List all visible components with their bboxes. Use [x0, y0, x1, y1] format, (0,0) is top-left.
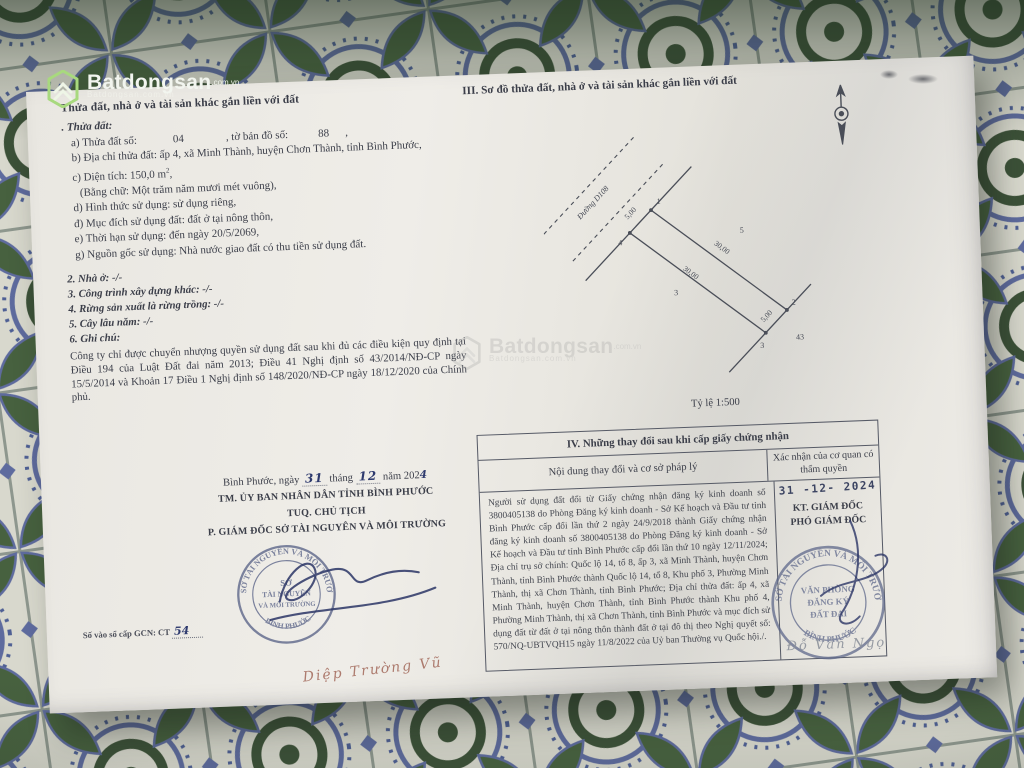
map-sheet-label: , tờ bản đồ số: [226, 129, 289, 143]
watermark-domain: .com.vn [211, 78, 239, 87]
adjacent-parcel-left: 3 [674, 288, 678, 297]
col-header-confirmation: Xác nhận của cơ quan có thẩm quyền [768, 446, 880, 481]
change-content-text: Người sử dụng đất đổi từ Giấy chứng nhận… [480, 482, 781, 671]
corner-4: 4 [618, 238, 622, 247]
director-signature-ink [255, 529, 449, 646]
asset-items: 2. Nhà ở: -/- 3. Công trình xây dựng khá… [67, 257, 472, 347]
adjacent-parcel-right: 5 [740, 226, 744, 235]
watermark-domain: .com.vn [613, 342, 641, 351]
stamp-and-signature-area: SỞ TÀI NGUYÊN VÀ MÔI TRƯỜNG BÌNH PHƯỚC S… [169, 531, 491, 693]
notes-paragraph: Công ty chỉ được chuyển nhượng quyền sử … [70, 335, 468, 405]
smudge-mark [908, 74, 938, 84]
dim-top: 5,00 [623, 205, 639, 221]
handwritten-year-digit: 4 [419, 469, 427, 481]
certificate-paper: Thửa đất, nhà ở và tài sản khác gắn liền… [26, 56, 997, 714]
corner-1: 1 [656, 197, 660, 206]
batdongsan-logo-icon [46, 70, 80, 108]
smudge-mark [880, 70, 898, 79]
signer-name-left: Diệp Trường Vũ [302, 654, 443, 685]
watermark-top-left: Batdongsan.com.vn Batdongsan.com.vn [46, 70, 239, 108]
confirmation-date-stamp: 31 -12- 2024 [774, 478, 880, 498]
area-label: c) Diện tích: 150,0 m [72, 168, 166, 184]
dim-long-upper: 30,00 [712, 239, 731, 256]
changes-table-body: Người sử dụng đất đổi từ Giấy chứng nhận… [480, 478, 887, 671]
date-prefix: Bình Phước, ngày [223, 475, 300, 489]
road-label: Đường D108 [575, 184, 611, 222]
handwritten-month: 12 [355, 469, 380, 485]
corner-3: 3 [760, 341, 764, 350]
gcn-handwritten-value: 54 [172, 624, 204, 639]
gcn-label: Số vào sổ cấp GCN: CT [83, 627, 170, 640]
map-sheet-value: 88 [318, 127, 329, 139]
watermark-tagline: Batdongsan.com.vn [87, 90, 239, 100]
watermark-tagline: Batdongsan.com.vn [489, 354, 641, 364]
parcel-info-column: Thửa đất, nhà ở và tài sản khác gắn liền… [60, 87, 473, 405]
adjacent-parcel-bottom: 43 [796, 332, 804, 341]
corner-2: 2 [791, 298, 795, 307]
date-year-word: năm [383, 471, 402, 483]
deputy-signature-ink [783, 511, 908, 646]
batdongsan-logo-icon [452, 336, 482, 370]
confirmation-cell: 31 -12- 2024 KT. GIÁM ĐỐC PHÓ GIÁM ĐỐC [774, 478, 886, 660]
issuer-signature-block: Bình Phước, ngày 31 tháng 12 năm 2024 TM… [167, 465, 491, 693]
year-printed: 202 [404, 470, 420, 482]
comma: , [345, 127, 348, 139]
parcel-number-label: a) Thửa đất số: [71, 135, 137, 150]
changes-table: IV. Những thay đổi sau khi cấp giấy chứn… [476, 420, 887, 672]
handwritten-day: 31 [302, 471, 327, 487]
dim-long-lower: 30,00 [681, 264, 700, 281]
parcel-number-value: 04 [173, 133, 184, 145]
comma: , [169, 168, 172, 180]
date-month-word: tháng [329, 473, 353, 485]
dim-bottom: 5,00 [759, 308, 775, 324]
photo-scene: Thửa đất, nhà ở và tài sản khác gắn liền… [0, 0, 1024, 768]
watermark-center: Batdongsan.com.vn Batdongsan.com.vn [452, 336, 641, 370]
